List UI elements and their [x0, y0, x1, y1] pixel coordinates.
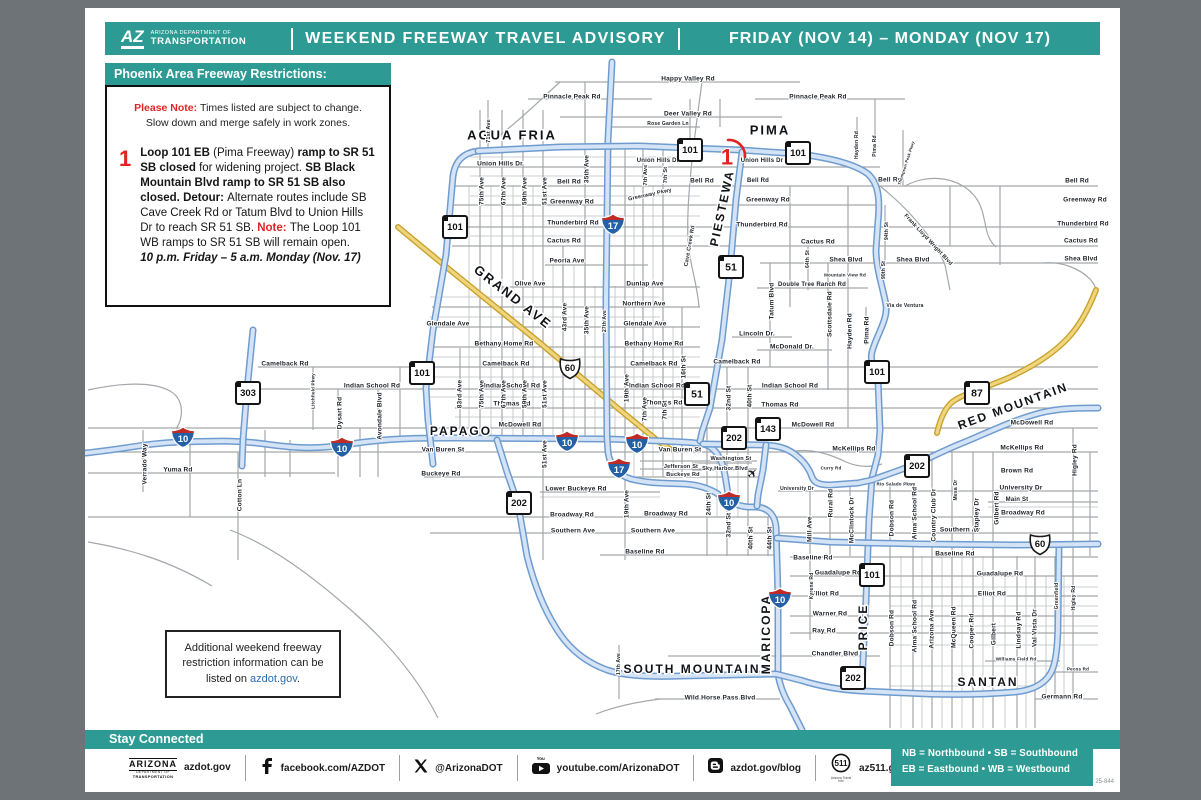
street-label-90th-st: 90th St — [881, 261, 887, 279]
street-label-83rd-ave: 83rd Ave — [457, 380, 464, 409]
street-label-pima-rd: Pima Rd — [872, 135, 878, 156]
street-label-75th-ave: 75th Ave — [479, 380, 486, 408]
street-label-27th-ave: 27th Ave — [602, 310, 608, 332]
street-label-university-dr: University Dr — [999, 485, 1042, 492]
route-shield-202: 202 — [507, 492, 531, 514]
route-shield-51: 51 — [719, 256, 743, 278]
svg-text:202: 202 — [511, 498, 527, 509]
street-label-glendale-ave: Glendale Ave — [623, 321, 666, 328]
footer-link-youtube[interactable]: youtube.com/ArizonaDOT — [557, 763, 680, 774]
street-label-higley-rd: Higley Rd — [1072, 444, 1079, 476]
street-label-51st-ave: 51st Ave — [542, 380, 549, 408]
header-bar: AZ ARIZONA DEPARTMENT OF TRANSPORTATION … — [105, 22, 1100, 55]
freeway-label-agua-fria: AGUA FRIA — [467, 128, 557, 143]
svg-text:101: 101 — [790, 148, 807, 159]
street-label-32nd-st: 32nd St — [726, 512, 733, 538]
street-label-southern-ave: Southern Ave — [551, 528, 595, 535]
restriction-text: Loop 101 EB (Pima Freeway) ramp to SR 51… — [140, 146, 377, 266]
street-label-higley-rd: Higley Rd — [1071, 586, 1077, 611]
restriction-marker-1: 1 — [721, 145, 733, 170]
street-label-camelback-rd: Camelback Rd — [482, 361, 529, 368]
street-label-gilbert: Gilbert — [991, 622, 998, 645]
north-arrow-icon: N — [1086, 748, 1087, 776]
freeway-label-pima: PIMA — [750, 123, 791, 138]
svg-text:101: 101 — [682, 145, 699, 156]
street-label-union-hills-dr: Union Hills Dr — [477, 161, 523, 168]
street-label-kyrene-rd: Kyrene Rd — [809, 573, 815, 600]
route-shield-202: 202 — [905, 455, 929, 477]
restrictions-header: Phoenix Area Freeway Restrictions: — [105, 63, 391, 85]
street-label-shea-blvd: Shea Blvd — [829, 257, 862, 264]
street-label-35th-ave: 35th Ave — [584, 306, 591, 334]
street-label-mesa-dr: Mesa Dr — [953, 480, 959, 501]
street-label-hayden-rd: Hayden Rd — [854, 131, 860, 159]
street-label-alma-school-rd: Alma School Rd — [912, 487, 919, 540]
street-label-40th-st: 40th St — [748, 526, 755, 550]
svg-text:51: 51 — [725, 262, 737, 274]
direction-legend: NB = Northbound • SB = Southbound EB = E… — [891, 738, 1093, 786]
street-label-van-buren-st: Van Buren St — [659, 447, 702, 454]
adot-header-logo: AZ ARIZONA DEPARTMENT OF TRANSPORTATION — [105, 28, 291, 49]
youtube-icon: You — [532, 757, 550, 780]
street-label-litchfield-pkwy: Litchfield Pkwy — [311, 373, 316, 409]
route-shield-101: 101 — [443, 216, 467, 238]
footer-item-x: @ArizonaDOT — [400, 759, 517, 778]
street-label-7th-ave: 7th Ave — [642, 397, 649, 422]
route-shield-202: 202 — [722, 427, 746, 449]
street-label-hayden-rd: Hayden Rd — [847, 313, 854, 349]
street-label-main-st: Main St — [1006, 497, 1029, 503]
svg-text:511: 511 — [835, 759, 848, 768]
street-label-7th-ave: 7th Ave — [643, 165, 649, 186]
footer-item-youtube: Youyoutube.com/ArizonaDOT — [518, 757, 694, 780]
route-shield-202: 202 — [841, 667, 865, 689]
svg-text:10: 10 — [178, 434, 189, 445]
street-label-sky-harbor-blvd: Sky Harbor Blvd — [702, 466, 748, 472]
svg-text:143: 143 — [760, 424, 776, 435]
svg-text:17: 17 — [608, 221, 619, 232]
freeway-label-south-mountain: SOUTH MOUNTAIN — [623, 662, 760, 676]
street-label-bell-rd: Bell Rd — [1065, 178, 1089, 185]
restrictions-note: Please Note: Times listed are subject to… — [123, 101, 373, 130]
street-label-mountain-view-rd: Mountain View Rd — [824, 273, 866, 278]
street-label-44th-st: 44th St — [767, 526, 774, 550]
adot-logo-icon: ARIZONADEPARTMENT OFTRANSPORTATION — [129, 758, 177, 779]
route-shield-101: 101 — [860, 564, 884, 586]
footer-item-facebook: facebook.com/AZDOT — [246, 758, 399, 779]
freeway-label-price: PRICE — [856, 604, 870, 651]
street-label-buckeye-rd: Buckeye Rd — [666, 472, 700, 478]
footer-item-blogger: azdot.gov/blog — [694, 758, 815, 778]
street-label-lincoln-dr-: Lincoln Dr. — [739, 331, 775, 338]
street-label-peoria-ave: Peoria Ave — [549, 258, 584, 265]
street-label-greenway-rd: Greenway Rd — [550, 199, 594, 206]
street-label-greenfield: Greenfield — [1054, 583, 1060, 610]
street-label-mcqueen-rd: McQueen Rd — [951, 606, 958, 648]
street-label-cotton-ln: Cotton Ln — [237, 479, 244, 511]
street-label-indian-school-rd: Indian School Rd — [762, 383, 818, 390]
street-label-17th-ave: 17th Ave — [616, 653, 622, 675]
street-label-bell-rd: Bell Rd — [747, 178, 769, 184]
street-label-bethany-home-rd: Bethany Home Rd — [475, 341, 534, 348]
street-label-chandler-blvd: Chandler Blvd — [812, 651, 859, 658]
street-label-camelback-rd: Camelback Rd — [261, 361, 308, 368]
street-label-yuma-rd: Yuma Rd — [163, 467, 192, 474]
freeway-label-santan: SANTAN — [957, 675, 1018, 689]
street-label-jefferson-st: Jefferson St — [664, 464, 698, 470]
street-label-brown-rd: Brown Rd — [1001, 468, 1033, 475]
street-label-buckeye-rd: Buckeye Rd — [421, 471, 460, 478]
route-shield-143: 143 — [756, 418, 780, 440]
street-label-wild-horse-pass-blvd: Wild Horse Pass Blvd — [685, 695, 756, 702]
street-label-northern-ave: Northern Ave — [622, 301, 665, 308]
footer-link-x[interactable]: @ArizonaDOT — [435, 763, 503, 774]
street-label-alma-school-rd: Alma School Rd — [912, 600, 919, 653]
street-label-35th-ave: 35th Ave — [584, 155, 591, 183]
advisory-page: AGUA FRIAPIMAPIESTEWAGRAND AVEPAPAGORED … — [85, 8, 1120, 792]
facebook-icon — [260, 758, 274, 779]
street-label-indian-school-rd: Indian School Rd — [629, 383, 685, 390]
street-label-mckellips-rd: McKellips Rd — [1000, 445, 1043, 452]
az511-icon: 511Arizona Travel Info — [830, 753, 852, 783]
street-label-val-vista-dr: Val Vista Dr — [1032, 609, 1039, 647]
street-label-indian-school-rd: Indian School Rd — [344, 383, 400, 390]
freeway-label-maricopa: MARICOPA — [759, 594, 773, 674]
street-label-71st-ave: 71st Ave — [486, 119, 492, 143]
street-label-mcdowell-rd: McDowell Rd — [792, 422, 835, 429]
svg-text:10: 10 — [562, 438, 573, 449]
street-label-lindsay-rd: Lindsay Rd — [1016, 611, 1023, 648]
legend-line-1: NB = Northbound • SB = Southbound — [902, 746, 1078, 762]
route-shield-101: 101 — [865, 361, 889, 383]
street-label-cactus-rd: Cactus Rd — [1064, 238, 1098, 245]
street-label-mill-ave: Mill Ave — [807, 516, 814, 542]
street-label-thomas-rd: Thomas Rd — [761, 402, 798, 409]
route-shield-10: 10 — [718, 491, 741, 512]
street-label-19th-ave: 19th Ave — [624, 374, 631, 402]
street-label-94th-st: 94th St — [884, 222, 890, 240]
street-label-thompson-peak-pkwy: Thompson Peak Pkwy — [897, 140, 916, 186]
street-label-guadalupe-rd: Guadalupe Rd — [815, 570, 861, 577]
street-label-bethany-home-rd: Bethany Home Rd — [625, 341, 684, 348]
street-label-mcdowell-rd: McDowell Rd — [1011, 420, 1054, 427]
street-label-24th-st: 24th St — [706, 492, 713, 516]
az511-caption: Arizona Travel Info — [830, 777, 852, 783]
street-label-camelback-rd: Camelback Rd — [713, 359, 760, 366]
svg-text:303: 303 — [240, 388, 256, 399]
street-label-59th-ave: 59th Ave — [522, 177, 529, 205]
route-shield-10: 10 — [331, 437, 354, 458]
restrictions-panel: Phoenix Area Freeway Restrictions: Pleas… — [105, 63, 391, 307]
street-label-rural-rd: Rural Rd — [828, 489, 835, 518]
street-label-shea-blvd: Shea Blvd — [896, 257, 929, 264]
route-shield-87: 87 — [965, 382, 989, 404]
street-label-64th-st: 64th St — [805, 250, 811, 268]
footer-links: ARIZONADEPARTMENT OFTRANSPORTATIONazdot.… — [85, 749, 885, 787]
street-label-pinnacle-peak-rd: Pinnacle Peak Rd — [789, 94, 846, 101]
street-label-elliot-rd: Elliot Rd — [811, 591, 839, 598]
restriction-number: 1 — [119, 146, 131, 266]
freeway-label-papago: PAPAGO — [430, 424, 492, 438]
route-shield-10: 10 — [626, 433, 649, 454]
route-shield-51: 51 — [685, 383, 709, 405]
street-label-broadway-rd: Broadway Rd — [550, 512, 594, 519]
street-label-7th-st: 7th St — [663, 167, 669, 183]
street-label-washington-st: Washington St — [711, 456, 752, 462]
street-label-16th-st: 16th St — [681, 355, 688, 379]
advisory-title: WEEKEND FREEWAY TRAVEL ADVISORY — [293, 30, 678, 48]
route-shield-303: 303 — [236, 382, 260, 404]
street-label-southern-ave: Southern Ave — [631, 528, 675, 535]
legend-line-2: EB = Eastbound • WB = Westbound — [902, 762, 1078, 778]
street-label-stapley-dr: Stapley Dr — [974, 498, 981, 532]
svg-text:101: 101 — [414, 368, 431, 379]
street-label-51st-ave: 51st Ave — [542, 177, 549, 205]
street-label-67th-ave: 67th Ave — [501, 380, 508, 408]
street-label-59th-ave: 59th Ave — [522, 380, 529, 408]
street-label-scottsdale-rd: Scottsdale Rd — [827, 291, 834, 337]
street-label-32nd-st: 32nd St — [726, 385, 733, 411]
blogger-icon — [708, 758, 723, 778]
street-label-thunderbird-rd: Thunderbird Rd — [736, 222, 788, 229]
svg-text:202: 202 — [726, 433, 742, 444]
street-label-mcdonald-dr-: McDonald Dr. — [770, 344, 814, 351]
street-label-germann-rd: Germann Rd — [1041, 694, 1082, 701]
route-shield-101: 101 — [678, 139, 702, 161]
street-label-dobson-rd: Dobson Rd — [889, 500, 896, 536]
street-label-warner-rd: Warner Rd — [813, 611, 847, 618]
azdot-gov-link[interactable]: azdot.gov — [250, 673, 297, 685]
svg-text:10: 10 — [632, 440, 643, 451]
street-label-75th-ave: 75th Ave — [479, 177, 486, 205]
street-label-indian-school-rd: Indian School Rd — [484, 383, 540, 390]
route-shield-10: 10 — [556, 431, 579, 452]
street-label-thunderbird-rd: Thunderbird Rd — [547, 220, 599, 227]
street-label-40th-st: 40th St — [747, 384, 754, 408]
svg-text:101: 101 — [869, 367, 886, 378]
street-label-19th-ave: 19th Ave — [624, 490, 631, 518]
street-label-gilbert-rd: Gilbert Rd — [994, 491, 1001, 524]
street-label-cactus-rd: Cactus Rd — [547, 238, 581, 245]
street-label-bell-rd: Bell Rd — [690, 178, 714, 185]
street-label-via-de-ventura: Via de Ventura — [886, 303, 923, 309]
svg-text:202: 202 — [845, 673, 861, 684]
street-label-greenway-rd: Greenway Rd — [746, 197, 790, 204]
street-label-lower-buckeye-rd: Lower Buckeye Rd — [545, 486, 606, 493]
svg-text:87: 87 — [971, 388, 983, 400]
street-label-guadalupe-rd: Guadalupe Rd — [977, 571, 1023, 578]
street-label-pecos-rd: Pecos Rd — [1067, 667, 1089, 672]
street-label-tatum-blvd: Tatum Blvd — [769, 283, 776, 320]
street-label-elliot-rd: Elliot Rd — [978, 591, 1006, 598]
street-label-union-hills-dr: Union Hills Dr — [637, 158, 680, 164]
street-label-rio-salado-pkwy: Rio Salado Pkwy — [876, 482, 915, 487]
street-label-cactus-rd: Cactus Rd — [801, 239, 835, 246]
street-label-mcclintock-dr: McClintock Dr — [849, 497, 856, 544]
route-shield-101: 101 — [786, 142, 810, 164]
street-label-7th-st: 7th St — [662, 400, 669, 420]
adot-az-emblem: AZ — [121, 28, 144, 49]
svg-text:60: 60 — [1035, 539, 1046, 550]
street-label-union-hills-dr: Union Hills Dr — [741, 158, 784, 164]
restrictions-body: Please Note: Times listed are subject to… — [105, 85, 391, 307]
street-label-double-tree-ranch-rd: Double Tree Ranch Rd — [778, 282, 846, 288]
street-label-thunderbird-rd: Thunderbird Rd — [1057, 221, 1109, 228]
street-label-pima-rd: Pima Rd — [864, 316, 871, 343]
route-shield-60: 60 — [1030, 535, 1050, 555]
svg-text:60: 60 — [565, 363, 576, 374]
adot-logo-line2: TRANSPORTATION — [151, 36, 247, 47]
street-label-67th-ave: 67th Ave — [501, 177, 508, 205]
street-label-williams-field-rd: Williams Field Rd — [996, 657, 1037, 662]
svg-text:10: 10 — [337, 444, 348, 455]
street-label-mcdowell-rd: McDowell Rd — [499, 422, 542, 429]
footer-link-adot-logo[interactable]: azdot.gov — [184, 762, 231, 773]
street-label-verrado-way: Verrado Way — [142, 443, 149, 485]
street-label-baseline-rd: Baseline Rd — [625, 549, 664, 556]
street-label-greenway-pkwy: Greenway Pkwy — [628, 187, 673, 202]
street-label-camelback-rd: Camelback Rd — [630, 361, 677, 368]
street-label-greenway-rd: Greenway Rd — [1063, 197, 1107, 204]
street-label-glendale-ave: Glendale Ave — [426, 321, 469, 328]
street-label-rose-garden-ln: Rose Garden Ln — [647, 121, 688, 127]
street-label-university-dr: University Dr — [780, 486, 814, 492]
footer-link-blogger[interactable]: azdot.gov/blog — [730, 763, 801, 774]
sheet-number: 25-844 — [1095, 779, 1114, 785]
street-label-deer-valley-rd: Deer Valley Rd — [664, 111, 712, 118]
footer-item-adot-logo: ARIZONADEPARTMENT OFTRANSPORTATIONazdot.… — [115, 758, 245, 779]
x-icon — [414, 759, 428, 778]
street-label-cooper-rd: Cooper Rd — [969, 613, 976, 648]
street-label-dobson-rd: Dobson Rd — [889, 610, 896, 646]
street-label-bell-rd: Bell Rd — [557, 179, 581, 186]
street-label-happy-valley-rd: Happy Valley Rd — [661, 76, 715, 83]
street-label-broadway-rd: Broadway Rd — [1001, 510, 1045, 517]
street-label-51st-ave: 51st Ave — [542, 440, 549, 468]
street-label-broadway-rd: Broadway Rd — [644, 511, 688, 518]
street-label-43rd-ave: 43rd Ave — [562, 303, 569, 332]
street-label-dunlap-ave: Dunlap Ave — [626, 281, 663, 288]
svg-text:10: 10 — [724, 498, 735, 509]
street-label-van-buren-st: Van Buren St — [422, 447, 465, 454]
additional-info-box: Additional weekend freeway restriction i… — [165, 630, 341, 698]
street-label-shea-blvd: Shea Blvd — [1064, 256, 1097, 263]
svg-text:101: 101 — [447, 222, 464, 233]
street-label-avondale-blvd: Avondale Blvd — [377, 392, 384, 440]
street-label-arizona-ave: Arizona Ave — [929, 609, 936, 648]
street-label-olive-ave: Olive Ave — [515, 281, 546, 288]
route-shield-101: 101 — [410, 362, 434, 384]
street-label-mckellips-rd: McKellips Rd — [832, 446, 875, 453]
street-label-country-club-dr: Country Club Dr — [931, 488, 938, 541]
street-label-baseline-rd: Baseline Rd — [935, 551, 974, 558]
street-label-dysart-rd: Dysart Rd — [337, 397, 344, 430]
svg-text:51: 51 — [691, 389, 703, 401]
svg-text:17: 17 — [614, 465, 625, 476]
street-label-curry-rd: Curry Rd — [821, 466, 842, 471]
footer-link-facebook[interactable]: facebook.com/AZDOT — [281, 763, 385, 774]
svg-text:101: 101 — [864, 570, 881, 581]
street-label-ray-rd: Ray Rd — [812, 628, 836, 635]
screenshot-root: { "header": { "logo_az": "AZ", "logo_lin… — [0, 0, 1201, 800]
restriction-item: 1 Loop 101 EB (Pima Freeway) ramp to SR … — [119, 146, 377, 266]
svg-text:202: 202 — [909, 461, 925, 472]
advisory-dates: FRIDAY (NOV 14) – MONDAY (NOV 17) — [680, 30, 1100, 48]
street-label-pinnacle-peak-rd: Pinnacle Peak Rd — [543, 94, 600, 101]
street-label-baseline-rd: Baseline Rd — [793, 555, 832, 562]
svg-text:10: 10 — [775, 595, 786, 606]
